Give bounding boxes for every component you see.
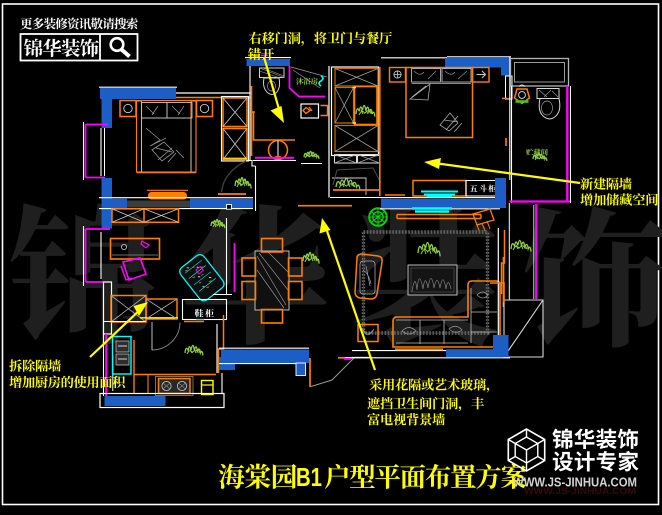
- svg-text:B1: B1: [296, 462, 322, 492]
- svg-text:WWW.JS-JINHUA.COM: WWW.JS-JINHUA.COM: [524, 486, 636, 497]
